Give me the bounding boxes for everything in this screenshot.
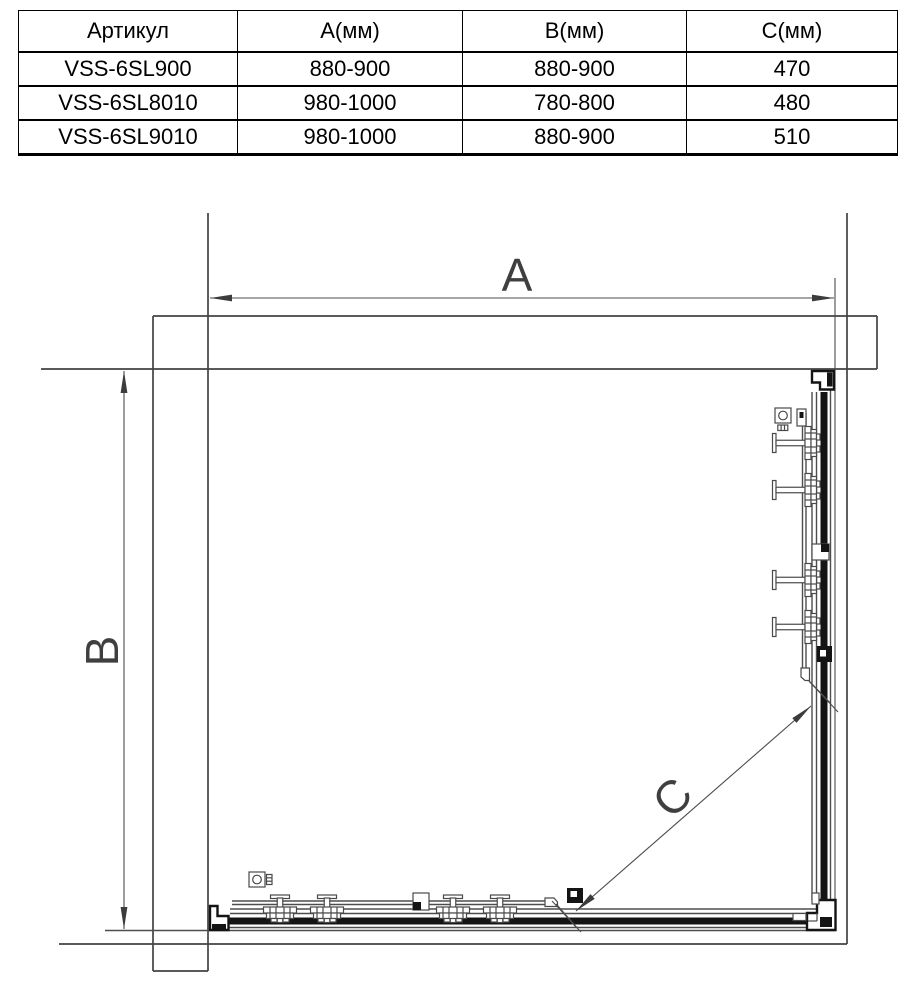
bottom-door-stopper: [567, 888, 583, 903]
roller-carrier: [773, 427, 821, 460]
right-door-stopper: [817, 646, 832, 662]
wall-structure: [41, 213, 877, 971]
dimension-a: A: [210, 249, 835, 930]
right-mid-bracket: [812, 544, 829, 560]
dimension-b-label: B: [76, 636, 128, 667]
roller-carrier: [437, 895, 470, 923]
right-glass-clamp: [797, 409, 806, 426]
dimension-b: B: [76, 371, 150, 931]
roller-carrier: [484, 895, 517, 923]
bottom-mid-bracket: [413, 893, 429, 910]
technical-drawing: A B: [0, 0, 917, 999]
bottom-knob-icon: [249, 872, 272, 887]
right-wall-bracket-foot: [827, 373, 833, 387]
dimension-c: C: [552, 684, 838, 932]
bottom-wall-bracket-foot: [212, 924, 226, 930]
roller-carrier: [773, 474, 821, 507]
roller-carrier: [773, 564, 821, 597]
dimension-c-label: C: [642, 767, 702, 827]
right-knob-icon: [775, 408, 791, 431]
roller-carrier: [264, 895, 297, 923]
roller-carrier: [773, 611, 821, 644]
right-door-assembly: [773, 371, 835, 902]
dimension-a-label: A: [502, 249, 533, 301]
bottom-door-assembly: [105, 872, 836, 931]
datasheet-page: Артикул А(мм) В(мм) С(мм) VSS-6SL900 880…: [0, 0, 917, 999]
roller-carrier: [311, 895, 344, 923]
